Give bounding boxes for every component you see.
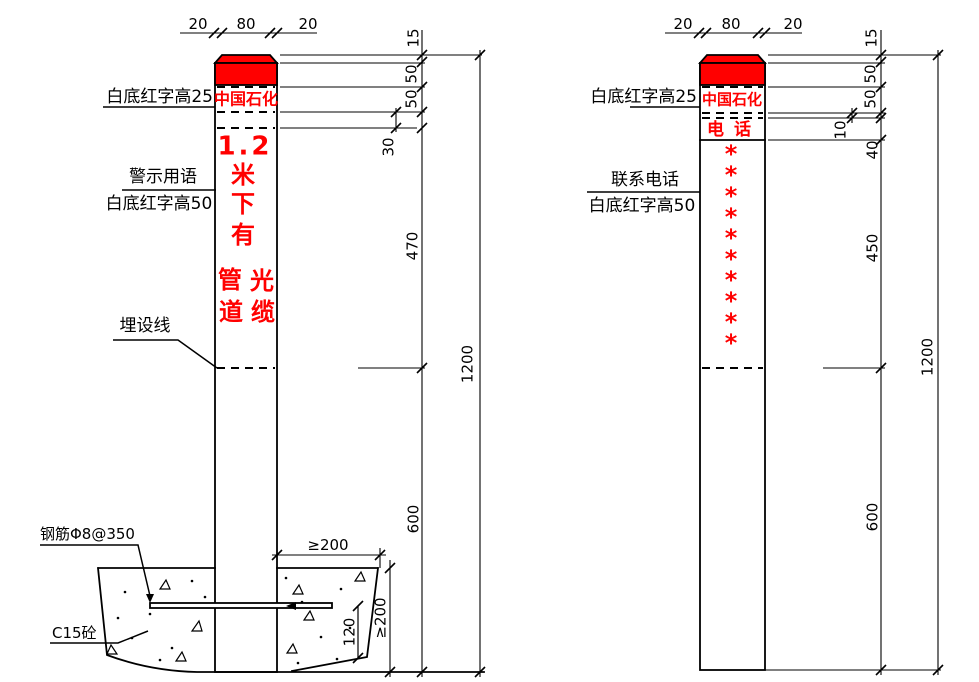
- brand-text: 中国石化: [214, 90, 278, 109]
- dim-20-left: 20: [188, 15, 207, 33]
- concrete-label: C15砼: [52, 624, 97, 642]
- left-post-view: 20 80 20 中国石化 1.2 米 下 有 管 光 道 缆 白底红字高25 …: [40, 15, 485, 677]
- dim-50b: 50: [403, 89, 421, 108]
- rebar-leader-arrow: [146, 594, 154, 603]
- dim-80: 80: [236, 15, 255, 33]
- warning-char-5: 光: [249, 267, 274, 295]
- cap-label: 白底红字高25: [106, 87, 213, 107]
- dim-1200: 1200: [919, 338, 937, 376]
- dim-50a: 50: [403, 64, 421, 83]
- dim-600: 600: [864, 503, 882, 532]
- dim-20-right: 20: [783, 15, 802, 33]
- cap-label: 白底红字高25: [590, 87, 697, 107]
- marker-post-technical-drawing: 20 80 20 中国石化 1.2 米 下 有 管 光 道 缆 白底红字高25 …: [0, 0, 979, 682]
- post-red-band: [700, 63, 765, 85]
- right-post-view: 20 80 20 中国石化 电 话 * * * * * * * * * * 白底…: [587, 15, 943, 675]
- burial-line-label: 埋设线: [120, 316, 171, 336]
- post-cap: [215, 55, 277, 63]
- phone-number-stars: * * * * * * * * * *: [725, 140, 738, 357]
- dim-15: 15: [405, 28, 423, 47]
- warning-subtitle-label: 白底红字高50: [106, 194, 213, 214]
- warning-char-3: 有: [231, 221, 255, 249]
- warning-title-label: 警示用语: [129, 167, 197, 187]
- warning-char-4: 管: [218, 266, 242, 294]
- dim-ge200-width: ≥200: [307, 536, 348, 554]
- dim-50b: 50: [862, 89, 880, 108]
- post-red-band: [215, 63, 277, 85]
- burial-label-leader: [113, 340, 217, 368]
- dim-ge200-depth: ≥200: [372, 597, 390, 638]
- warning-char-1: 米: [231, 161, 255, 189]
- right-top-width-dimension: 20 80 20: [665, 15, 803, 38]
- contact-subtitle-label: 白底红字高50: [589, 196, 696, 216]
- dim-450: 450: [864, 234, 882, 263]
- left-callouts: 白底红字高25 警示用语 白底红字高50 埋设线 钢筋Φ8@350 C15砼: [40, 87, 217, 643]
- dim-10: 10: [832, 120, 850, 139]
- warning-char-6: 道: [219, 298, 243, 326]
- dim-120: 120: [341, 618, 359, 647]
- warning-char-2: 下: [231, 190, 255, 218]
- dim-20-left: 20: [673, 15, 692, 33]
- warning-char-7: 缆: [251, 298, 275, 326]
- dim-1200: 1200: [459, 345, 477, 383]
- dim-20-right: 20: [298, 15, 317, 33]
- contact-label: 联系电话: [611, 170, 679, 190]
- post-cap: [700, 55, 765, 63]
- dim-80: 80: [721, 15, 740, 33]
- dim-50a: 50: [862, 64, 880, 83]
- rebar-label-leader: [40, 545, 150, 596]
- dim-600: 600: [405, 505, 423, 534]
- left-top-width-dimension: 20 80 20: [180, 15, 318, 38]
- warning-char-0: 1.2: [217, 132, 272, 162]
- left-dimension-chain: 15 50 50 30 470 600 1200: [280, 28, 485, 677]
- dim-40: 40: [864, 140, 882, 159]
- brand-text: 中国石化: [702, 91, 762, 109]
- rebar-bar: [150, 603, 332, 608]
- foundation: ≥200 ≥200 120: [98, 536, 484, 677]
- dim-15: 15: [863, 28, 881, 47]
- rebar-label: 钢筋Φ8@350: [40, 525, 135, 543]
- dim-30: 30: [380, 137, 398, 156]
- dim-470: 470: [404, 232, 422, 261]
- right-callouts: 白底红字高25 联系电话 白底红字高50: [587, 87, 700, 216]
- drawing-canvas: 20 80 20 中国石化 1.2 米 下 有 管 光 道 缆 白底红字高25 …: [0, 0, 979, 682]
- foundation-outline: [98, 568, 484, 672]
- star-9: *: [725, 329, 738, 357]
- phone-title-text: 电 话: [707, 119, 753, 140]
- right-dimension-chain: 15 50 50 10 40 450 600 1200: [765, 28, 943, 675]
